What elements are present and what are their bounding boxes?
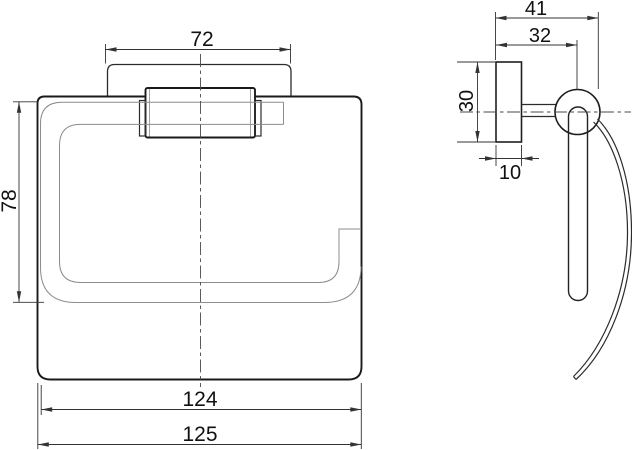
side-view: 41 32 30 10 — [456, 0, 632, 380]
dim-wall-to-center: 32 — [496, 25, 577, 89]
arrowhead — [106, 47, 117, 51]
paper-holder-drawing: 72 78 124 125 — [0, 0, 632, 450]
side-holder-arm — [569, 107, 588, 301]
arrowhead — [17, 291, 21, 302]
dim-label-plate-thickness: 10 — [499, 162, 521, 184]
arrowhead — [17, 102, 21, 113]
arrowhead — [566, 43, 577, 47]
paper-roll-inner-outline — [60, 124, 362, 282]
dim-label-roll-height: 78 — [0, 189, 21, 212]
side-cover-curve-inner — [574, 122, 628, 377]
dim-label-overall-width: 125 — [182, 423, 217, 446]
front-view: 72 78 124 125 — [0, 28, 362, 449]
technical-drawing-canvas: 72 78 124 125 — [0, 0, 632, 450]
dim-label-plate-width: 72 — [190, 28, 213, 51]
arrowhead — [496, 16, 507, 20]
dim-plate-width: 72 — [106, 28, 291, 64]
dim-label-body-width: 124 — [182, 388, 217, 411]
arrowhead — [350, 407, 361, 411]
arrowhead — [587, 16, 598, 20]
dim-label-wall-to-center: 32 — [529, 25, 551, 47]
dim-label-overall-depth: 41 — [525, 0, 547, 20]
side-cover-curve-outer — [576, 119, 632, 380]
front-cover-outline — [38, 97, 362, 380]
side-mount-plate — [496, 62, 522, 142]
arrowhead — [522, 156, 533, 160]
side-cover-curve-tip — [574, 377, 577, 380]
arrowhead — [38, 442, 49, 446]
arrowhead — [475, 131, 479, 142]
arrowhead — [41, 407, 52, 411]
arrowhead — [475, 62, 479, 73]
arrowhead — [485, 156, 496, 160]
arrowhead — [496, 43, 507, 47]
dim-plate-height: 30 — [456, 62, 495, 142]
dim-plate-thickness: 10 — [479, 145, 539, 184]
dim-label-plate-height: 30 — [456, 90, 478, 112]
arrowhead — [280, 47, 291, 51]
arrowhead — [350, 442, 361, 446]
